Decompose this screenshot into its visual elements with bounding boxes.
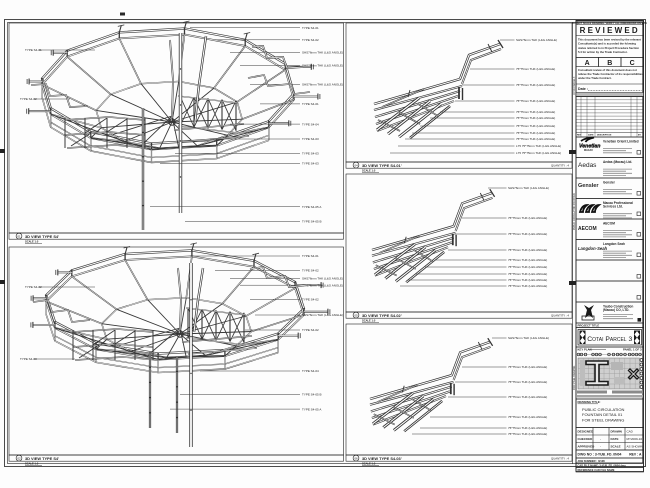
svg-text:Date :: Date :: [578, 87, 588, 91]
svg-text:Gensler: Gensler: [578, 183, 599, 189]
svg-text:QUANTITY : 4: QUANTITY : 4: [551, 314, 569, 318]
svg-text:REFERENCE CAD FILE NAME: REFERENCE CAD FILE NAME: [578, 468, 615, 472]
svg-text:DO NOT SCALE DRAWING. VERIFY A: DO NOT SCALE DRAWING. VERIFY ALL DIMENSI…: [572, 22, 647, 25]
svg-text:DWG NO : 3-YUB_FD_0N04: DWG NO : 3-YUB_FD_0N04: [578, 453, 622, 457]
svg-text:-: -: [600, 437, 601, 441]
svg-text:75*75mm THK (L&G ANGLE): 75*75mm THK (L&G ANGLE): [508, 272, 547, 276]
svg-text:75*75mm THK (L&G ANGLE): 75*75mm THK (L&G ANGLE): [508, 284, 547, 288]
svg-text:FOR STEEL DRAWING: FOR STEEL DRAWING: [582, 417, 624, 422]
svg-text:75*75mm THK (L&G ANGLE): 75*75mm THK (L&G ANGLE): [516, 116, 555, 120]
svg-text:SHS76mm THK (L&G ANGLE): SHS76mm THK (L&G ANGLE): [302, 64, 343, 68]
svg-text:04: 04: [354, 163, 358, 167]
svg-text:PANEL 1 OF 3: PANEL 1 OF 3: [623, 348, 642, 352]
svg-text:L75 75*75mm THK (L&G ANGLE): L75 75*75mm THK (L&G ANGLE): [516, 144, 561, 148]
svg-text:Venetian Orient Limited: Venetian Orient Limited: [603, 140, 639, 144]
svg-text:TYPE S4-05 A: TYPE S4-05 A: [302, 205, 321, 209]
svg-text:DRAWING TITLE:: DRAWING TITLE:: [578, 400, 601, 404]
svg-text:TYPE S4-02: TYPE S4-02: [20, 97, 37, 101]
svg-text:APPROVED: APPROVED: [578, 445, 596, 449]
svg-text:SHS76mm THK (L&G ANGLE): SHS76mm THK (L&G ANGLE): [508, 186, 549, 190]
svg-text:75*75mm THK (L&G ANGLE): 75*75mm THK (L&G ANGLE): [508, 426, 547, 430]
svg-text:Consultants(s) and is accorded: Consultants(s) and is accorded the folow…: [578, 42, 636, 46]
svg-text:REV : A: REV : A: [629, 453, 642, 457]
svg-text:75*75mm THK (L&G ANGLE): 75*75mm THK (L&G ANGLE): [508, 380, 547, 384]
svg-text:75*75mm THK (L&G ANGLE): 75*75mm THK (L&G ANGLE): [508, 232, 547, 236]
svg-text:75*75mm THK (L&G ANGLE): 75*75mm THK (L&G ANGLE): [508, 258, 547, 262]
svg-text:75*75mm THK (L&G ANGLE): 75*75mm THK (L&G ANGLE): [516, 131, 555, 135]
svg-text:TYPE S4-03: TYPE S4-03: [302, 152, 319, 156]
svg-text:TYPE S4-01: TYPE S4-01: [302, 254, 319, 258]
svg-text:MY2009-10: MY2009-10: [627, 437, 643, 441]
svg-text:SHS76mm THK (L&G ANGLE): SHS76mm THK (L&G ANGLE): [302, 313, 343, 317]
svg-text:TYPE S4-04: TYPE S4-04: [302, 122, 319, 126]
svg-text:75*75mm THK (L&G ANGLE): 75*75mm THK (L&G ANGLE): [508, 278, 547, 282]
svg-text:75*75mm THK (L&G ANGLE): 75*75mm THK (L&G ANGLE): [508, 432, 547, 436]
svg-text:PROJECT TITLE: PROJECT TITLE: [578, 324, 600, 328]
svg-text:Gensler: Gensler: [603, 181, 616, 185]
svg-text:75*75mm THK (L&G ANGLE): 75*75mm THK (L&G ANGLE): [508, 365, 547, 369]
svg-text:TYPE S4-02: TYPE S4-02: [302, 38, 319, 42]
svg-text:TYPE S4-03: TYPE S4-03: [302, 137, 319, 141]
svg-text:75*75mm THK (L&G ANGLE): 75*75mm THK (L&G ANGLE): [508, 248, 547, 252]
svg-text:06: 06: [354, 456, 358, 460]
svg-text:3D VIEW TYPE S4-02': 3D VIEW TYPE S4-02': [362, 313, 402, 318]
svg-text:TYPE S4-01: TYPE S4-01: [302, 102, 319, 106]
svg-text:REVIEWED: REVIEWED: [580, 26, 640, 35]
svg-text:SHS76mm THK (L&G ANGLE): SHS76mm THK (L&G ANGLE): [302, 83, 343, 87]
svg-text:75*75mm THK (L&G ANGLE): 75*75mm THK (L&G ANGLE): [508, 415, 547, 419]
svg-text:3D VIEW TYPE S4': 3D VIEW TYPE S4': [25, 234, 59, 239]
svg-text:TYPE S4-02: TYPE S4-02: [302, 269, 319, 273]
svg-text:75*75mm THK (L&G ANGLE): 75*75mm THK (L&G ANGLE): [516, 124, 555, 128]
svg-text:75*75mm THK (L&G ANGLE): 75*75mm THK (L&G ANGLE): [516, 137, 555, 141]
svg-text:75*75mm THK (L&G ANGLE): 75*75mm THK (L&G ANGLE): [516, 83, 555, 87]
svg-text:REV: REV: [577, 135, 582, 137]
svg-text:TYPE S4-05 A: TYPE S4-05 A: [302, 407, 321, 411]
svg-text:TYPE S4-01: TYPE S4-01: [302, 26, 319, 30]
svg-text:A: A: [585, 60, 590, 67]
svg-text:CAD: CAD: [627, 430, 634, 434]
svg-text:3D VIEW TYPE S4': 3D VIEW TYPE S4': [25, 456, 59, 461]
svg-text:QUANTITY : 4: QUANTITY : 4: [551, 457, 569, 461]
svg-text:SCALE 1:5: SCALE 1:5: [362, 461, 376, 465]
svg-text:Consultant review of this docu: Consultant review of this document does …: [578, 68, 637, 72]
svg-text:COTAI PARCEL 3: COTAI PARCEL 3: [573, 76, 576, 95]
svg-text:01: 01: [17, 234, 21, 238]
svg-text:under the Trade Contract.: under the Trade Contract.: [578, 76, 612, 80]
svg-text:PUBLIC CIRCULATION FOUNTAIN: PUBLIC CIRCULATION FOUNTAIN: [573, 193, 576, 230]
svg-text:SHS76mm THK (L&G ANGLE): SHS76mm THK (L&G ANGLE): [302, 277, 343, 281]
svg-text:SCALE 1:5: SCALE 1:5: [362, 168, 376, 172]
svg-text:TYPE S4-02: TYPE S4-02: [302, 298, 319, 302]
svg-text:SCALE 1:5: SCALE 1:5: [25, 239, 39, 243]
svg-text:FOR STEEL DRAWING: FOR STEEL DRAWING: [573, 365, 576, 390]
svg-text:C: C: [630, 60, 635, 67]
svg-text:TYPE S4-02: TYPE S4-02: [25, 285, 42, 289]
svg-text:Langdon Seah: Langdon Seah: [603, 242, 625, 246]
svg-text:DATE: DATE: [588, 134, 594, 137]
svg-text:JOB NUMBER : 0/128: JOB NUMBER : 0/128: [578, 459, 606, 463]
svg-text:3D VIEW TYPE S4-01': 3D VIEW TYPE S4-01': [362, 163, 402, 168]
svg-text:L75 75*75mm THK (L&G ANGLE): L75 75*75mm THK (L&G ANGLE): [516, 151, 561, 155]
svg-text:AECOM: AECOM: [578, 226, 597, 232]
svg-text:This document has been revised: This document has been revised by the re…: [578, 38, 641, 42]
svg-text:AECOM: AECOM: [603, 222, 615, 226]
svg-text:75*75mm THK (L&G ANGLE): 75*75mm THK (L&G ANGLE): [516, 67, 555, 71]
svg-text:TYPE S4-01: TYPE S4-01: [25, 48, 42, 52]
svg-text:TYPE S4-03: TYPE S4-03: [302, 162, 319, 166]
svg-text:COTAI PARCEL 3: COTAI PARCEL 3: [587, 336, 632, 343]
svg-text:3D VIEW TYPE S4-03': 3D VIEW TYPE S4-03': [362, 456, 402, 461]
svg-text:75*75mm THK (L&G ANGLE): 75*75mm THK (L&G ANGLE): [508, 216, 547, 220]
svg-text:Langdon·Seah: Langdon·Seah: [578, 246, 608, 251]
svg-text:75*75mm THK (L&G ANGLE): 75*75mm THK (L&G ANGLE): [516, 99, 555, 103]
svg-text:75*75mm THK (L&G ANGLE): 75*75mm THK (L&G ANGLE): [508, 395, 547, 399]
svg-text:B: B: [607, 60, 612, 67]
svg-text:SHS76mm THK (L&G ANGLE): SHS76mm THK (L&G ANGLE): [302, 283, 343, 287]
svg-text:5.4 for action by the Trade Co: 5.4 for action by the Trade Contractor.: [578, 50, 628, 54]
svg-text:relieve the Trade Contractor o: relieve the Trade Contractor of its resp…: [578, 72, 643, 76]
svg-text:75*75mm THK (L&G ANGLE): 75*75mm THK (L&G ANGLE): [516, 110, 555, 114]
svg-text:SCALE 1:5: SCALE 1:5: [25, 461, 39, 465]
svg-text:AS SHOWN: AS SHOWN: [627, 445, 643, 449]
svg-text:Services Ltd.: Services Ltd.: [603, 205, 623, 209]
svg-text:SHS76mm THK (L&G ANGLE): SHS76mm THK (L&G ANGLE): [516, 38, 557, 42]
svg-text:TYPE S4-05 B: TYPE S4-05 B: [302, 220, 322, 224]
svg-text:SCALE: SCALE: [611, 445, 621, 449]
svg-text:DATE: DATE: [611, 437, 619, 441]
svg-text:CAD FILE NAME: 3-YUB_FD_0N04.d: CAD FILE NAME: 3-YUB_FD_0N04.dwg: [578, 464, 627, 468]
svg-text:DESCRIPTION: DESCRIPTION: [597, 135, 612, 137]
svg-text:-: -: [600, 445, 601, 449]
svg-text:TYPE S4-05 B: TYPE S4-05 B: [302, 393, 322, 397]
svg-text:Aedas: Aedas: [578, 162, 597, 169]
svg-text:CHECKED: CHECKED: [578, 437, 594, 441]
svg-text:TYPE S4-04: TYPE S4-04: [302, 369, 319, 373]
svg-text:DRAWN: DRAWN: [611, 430, 622, 434]
svg-text:QUANTITY : 4: QUANTITY : 4: [551, 164, 569, 168]
svg-text:Aedas (Macau) Ltd.: Aedas (Macau) Ltd.: [603, 160, 632, 164]
svg-text:SHS76mm THK (L&G ANGLE): SHS76mm THK (L&G ANGLE): [508, 336, 549, 340]
svg-text:02: 02: [17, 456, 21, 460]
svg-text:(Macau) CO, LTD.: (Macau) CO, LTD.: [603, 308, 629, 312]
svg-text:SHS76mm THK (L&G ANGLE): SHS76mm THK (L&G ANGLE): [302, 51, 343, 55]
svg-text:MACAU: MACAU: [584, 149, 593, 152]
svg-text:DESIGNED: DESIGNED: [578, 430, 595, 434]
svg-text:05: 05: [354, 313, 358, 317]
svg-text:status referred to in Project: status referred to in Project Procedure …: [578, 46, 639, 50]
svg-text:TYPE S4-03: TYPE S4-03: [20, 357, 37, 361]
svg-text:TYPE S4-02: TYPE S4-02: [302, 328, 319, 332]
svg-text:75*75mm THK (L&G ANGLE): 75*75mm THK (L&G ANGLE): [508, 265, 547, 269]
svg-text:SCALE 1:5: SCALE 1:5: [362, 318, 376, 322]
